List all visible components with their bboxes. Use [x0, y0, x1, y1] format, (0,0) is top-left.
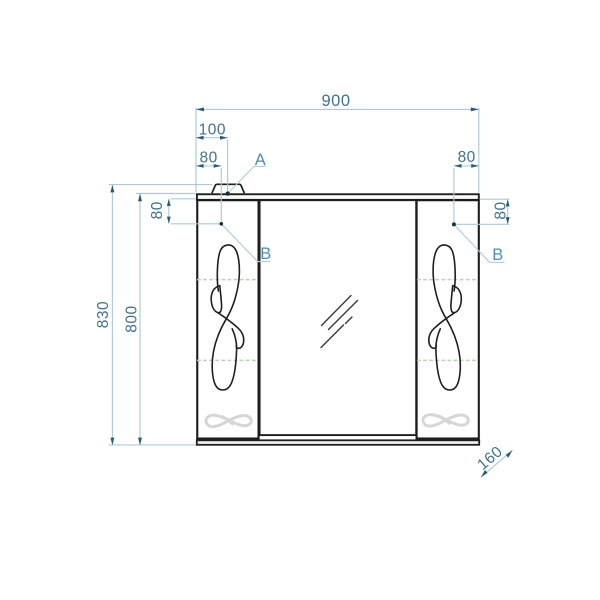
svg-text:100: 100: [199, 121, 226, 138]
svg-text:80: 80: [149, 201, 166, 219]
svg-text:B: B: [260, 245, 271, 263]
svg-text:80: 80: [199, 150, 217, 167]
svg-text:800: 800: [124, 305, 141, 332]
svg-text:A: A: [255, 151, 266, 169]
svg-text:830: 830: [95, 301, 112, 328]
svg-text:80: 80: [493, 201, 510, 219]
svg-text:80: 80: [458, 149, 476, 166]
svg-text:B: B: [492, 246, 503, 264]
svg-text:900: 900: [321, 92, 350, 110]
